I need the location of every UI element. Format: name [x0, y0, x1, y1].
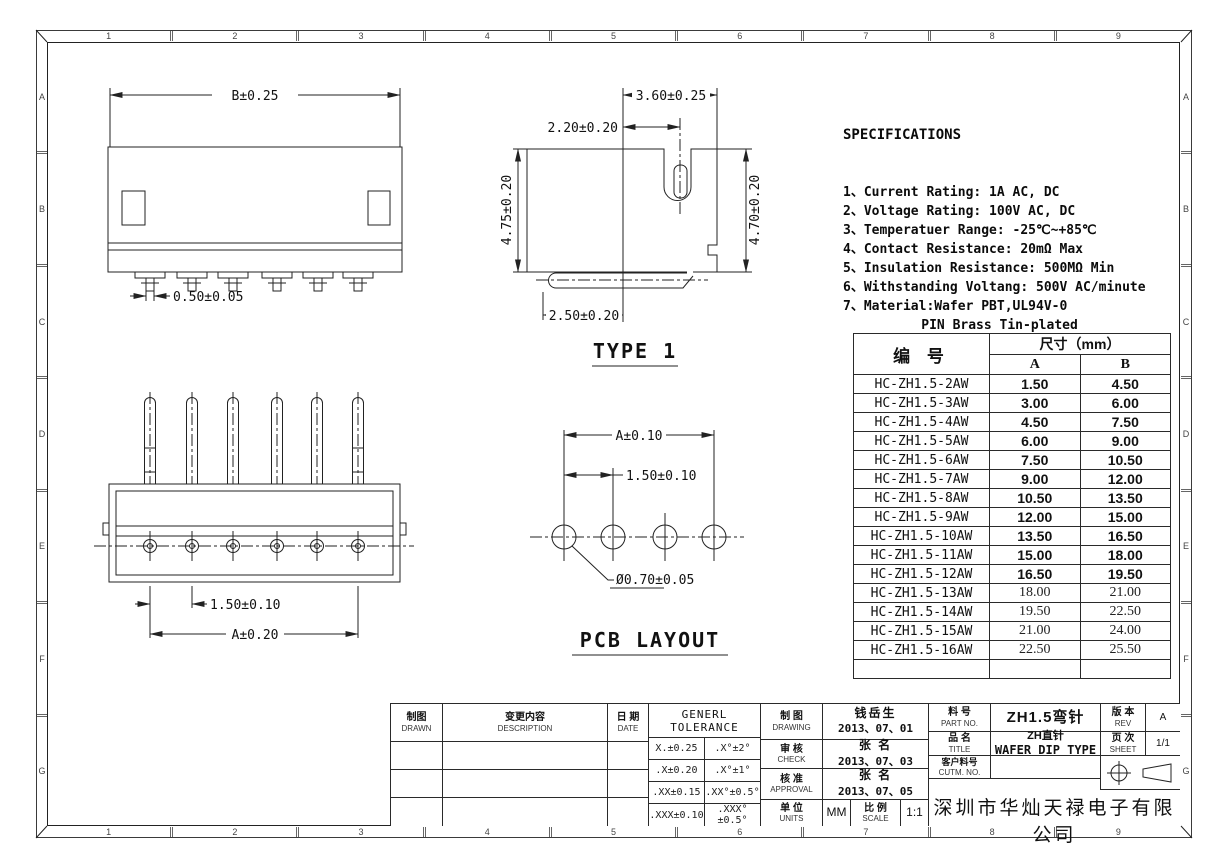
pcb-holes: [530, 513, 744, 561]
customer-no-value: [990, 755, 1100, 778]
part-number-cell: HC-ZH1.5-10AW: [854, 527, 990, 546]
part-no-en: PART NO.: [941, 719, 978, 728]
scale-value: 1:1: [900, 799, 928, 826]
dim-b-cell: 25.50: [1080, 641, 1171, 660]
third-angle-projection-icon: [1105, 759, 1177, 787]
dim-a-cell: 15.00: [990, 546, 1081, 565]
table-row: HC-ZH1.5-9AW12.0015.00: [854, 508, 1171, 527]
drawn-en: DRAWN: [402, 724, 432, 733]
check-name: 张 名: [859, 739, 892, 753]
tolerance-cell: .XX°±0.5°: [704, 781, 760, 803]
customer-no-label: 客户料号 CUTM. NO.: [928, 755, 990, 778]
dim-a-cell: 13.50: [990, 527, 1081, 546]
sheet-label: 页 次 SHEET: [1100, 731, 1145, 755]
scale-zh: 比 例: [864, 803, 887, 815]
parts-col-dim-header: 尺寸（mm）: [990, 334, 1171, 355]
part-number-cell: HC-ZH1.5-2AW: [854, 375, 990, 394]
approval-zh: 核 准: [780, 774, 803, 786]
dim-b-cell: 4.50: [1080, 375, 1171, 394]
check-zh: 审 核: [780, 744, 803, 756]
revision-cell: [442, 797, 607, 826]
table-row: HC-ZH1.5-4AW4.507.50: [854, 413, 1171, 432]
part-number-cell: HC-ZH1.5-5AW: [854, 432, 990, 451]
part-number-cell: HC-ZH1.5-16AW: [854, 641, 990, 660]
part-number-cell: HC-ZH1.5-12AW: [854, 565, 990, 584]
sheet-value: 1/1: [1145, 731, 1180, 755]
dim-b-cell: 10.50: [1080, 451, 1171, 470]
dim-a-cell: 6.00: [990, 432, 1081, 451]
front-view-pins: [145, 392, 364, 484]
check-en: CHECK: [777, 755, 805, 764]
customer-no-en: CUTM. NO.: [939, 768, 981, 777]
approval-name: 张 名: [859, 769, 892, 783]
revision-cell: [390, 797, 442, 826]
revision-cell: [390, 769, 442, 797]
part-number-cell: [854, 660, 990, 679]
parts-table: 编 号 尺寸（mm） A B HC-ZH1.5-2AW1.504.50HC-ZH…: [853, 333, 1171, 679]
dim-type1-top: 3.60±0.25: [636, 89, 706, 104]
dim-type1-bottom: 2.50±0.20: [549, 309, 619, 324]
drawing-signature: 钱岳生 2013、07、01: [822, 703, 928, 739]
revision-cell: [607, 769, 648, 797]
drawn-header: 制图 DRAWN: [390, 703, 442, 741]
approval-date: 2013、07、05: [838, 783, 913, 799]
dim-a-cell: 10.50: [990, 489, 1081, 508]
tolerance-cell: .X°±2°: [704, 737, 760, 759]
table-row: HC-ZH1.5-11AW15.0018.00: [854, 546, 1171, 565]
description-zh: 变更内容: [505, 712, 545, 724]
rev-value: A: [1145, 703, 1180, 731]
drawing-zh: 制 图: [780, 711, 803, 723]
table-row: HC-ZH1.5-10AW13.5016.50: [854, 527, 1171, 546]
part-number-cell: HC-ZH1.5-4AW: [854, 413, 990, 432]
spec-line: 2、Voltage Rating: 100V AC, DC: [843, 202, 1183, 221]
table-row: HC-ZH1.5-3AW3.006.00: [854, 394, 1171, 413]
units-label: 单 位 UNITS: [760, 799, 822, 826]
revision-cell: [607, 797, 648, 826]
dim-b-cell: 12.00: [1080, 470, 1171, 489]
dim-type1-slot: 2.20±0.20: [548, 121, 618, 136]
check-label: 审 核 CHECK: [760, 739, 822, 768]
spec-line: 1、Current Rating: 1A AC, DC: [843, 183, 1183, 202]
date-zh: 日 期: [617, 712, 640, 724]
spec-line: 5、Insulation Resistance: 500MΩ Min: [843, 259, 1183, 278]
dim-b-cell: 6.00: [1080, 394, 1171, 413]
pcb-layout-view: A±0.10 1.50±0.10 Ø0.70±0.05 PCB LAYOUT: [530, 427, 744, 655]
table-row: HC-ZH1.5-2AW1.504.50: [854, 375, 1171, 394]
table-row: HC-ZH1.5-5AW6.009.00: [854, 432, 1171, 451]
title-zh: 品 名: [948, 733, 971, 745]
revision-cell: [442, 741, 607, 769]
part-number-cell: HC-ZH1.5-15AW: [854, 622, 990, 641]
rev-zh: 版 本: [1112, 707, 1135, 719]
units-value: MM: [822, 799, 850, 826]
title-value: ZH直针 WAFER DIP TYPE: [990, 731, 1100, 755]
drawing-en: DRAWING: [772, 723, 810, 732]
type1-view: 3.60±0.25 2.20±0.20 4.75±0.20 4.70±0.20 …: [500, 87, 763, 366]
approval-label: 核 准 APPROVAL: [760, 768, 822, 799]
dim-a-cell: [990, 660, 1081, 679]
part-number-cell: HC-ZH1.5-14AW: [854, 603, 990, 622]
dim-b-cell: 22.50: [1080, 603, 1171, 622]
tolerance-cell: .X±0.20: [648, 759, 704, 781]
specifications-title: SPECIFICATIONS: [843, 126, 1183, 145]
approval-en: APPROVAL: [770, 785, 813, 794]
check-date: 2013、07、03: [838, 753, 913, 769]
specifications-block: SPECIFICATIONS 1、Current Rating: 1A AC, …: [843, 88, 1183, 373]
date-header: 日 期 DATE: [607, 703, 648, 741]
dim-a-cell: 12.00: [990, 508, 1081, 527]
title-en: TITLE: [949, 745, 971, 754]
part-number-cell: HC-ZH1.5-8AW: [854, 489, 990, 508]
dim-pcb-hole: Ø0.70±0.05: [616, 573, 694, 588]
units-en: UNITS: [780, 814, 804, 823]
drawing-label: 制 图 DRAWING: [760, 703, 822, 739]
dim-a-cell: 19.50: [990, 603, 1081, 622]
tolerance-header: GENERL TOLERANCE: [648, 703, 760, 737]
dim-a-cell: 3.00: [990, 394, 1081, 413]
drawn-zh: 制图: [407, 712, 427, 724]
dim-a-cell: 21.00: [990, 622, 1081, 641]
projection-symbol-cell: [1100, 755, 1180, 790]
front-view: 1.50±0.10 A±0.20: [94, 392, 414, 643]
dim-pcb-width: A±0.10: [616, 429, 663, 444]
dim-front-pitch: 1.50±0.10: [210, 598, 280, 613]
sheet-en: SHEET: [1110, 745, 1137, 754]
parts-col-b-header: B: [1080, 355, 1171, 375]
part-number-cell: HC-ZH1.5-13AW: [854, 584, 990, 603]
tolerance-cell: .X°±1°: [704, 759, 760, 781]
table-row: HC-ZH1.5-13AW18.0021.00: [854, 584, 1171, 603]
approval-signature: 张 名 2013、07、05: [822, 768, 928, 799]
tolerance-cell: .XXX±0.10: [648, 803, 704, 826]
dim-a-cell: 1.50: [990, 375, 1081, 394]
table-row: HC-ZH1.5-14AW19.5022.50: [854, 603, 1171, 622]
parts-col-part-header: 编 号: [854, 334, 990, 375]
dim-front-width: A±0.20: [232, 628, 279, 643]
spec-line: 7、Material:Wafer PBT,UL94V-0: [843, 297, 1183, 316]
drawing-name: 钱岳生: [854, 707, 896, 721]
spec-line: 6、Withstanding Voltang: 500V AC/minute: [843, 278, 1183, 297]
table-row: HC-ZH1.5-16AW22.5025.50: [854, 641, 1171, 660]
description-header: 变更内容 DESCRIPTION: [442, 703, 607, 741]
tolerance-cell: .XXX°±0.5°: [704, 803, 760, 826]
units-zh: 单 位: [780, 803, 803, 815]
tolerance-cell: X.±0.25: [648, 737, 704, 759]
dim-type1-right: 4.70±0.20: [748, 175, 763, 245]
part-number-cell: HC-ZH1.5-6AW: [854, 451, 990, 470]
side-view: B±0.25 0.50±0.05: [108, 87, 402, 305]
revision-cell: [442, 769, 607, 797]
dim-side-pin: 0.50±0.05: [173, 290, 243, 305]
part-no-label: 料 号 PART NO.: [928, 703, 990, 731]
revision-cell: [390, 741, 442, 769]
tolerance-cell: .XX±0.15: [648, 781, 704, 803]
dim-a-cell: 7.50: [990, 451, 1081, 470]
dim-a-cell: 22.50: [990, 641, 1081, 660]
title-value-zh: ZH直针: [1027, 730, 1064, 743]
dim-a-cell: 9.00: [990, 470, 1081, 489]
dim-b-cell: 9.00: [1080, 432, 1171, 451]
dim-b-cell: 19.50: [1080, 565, 1171, 584]
dim-b-cell: 13.50: [1080, 489, 1171, 508]
dim-b-cell: 21.00: [1080, 584, 1171, 603]
part-number-cell: HC-ZH1.5-9AW: [854, 508, 990, 527]
pcb-layout-label: PCB LAYOUT: [580, 628, 720, 652]
dim-b-cell: [1080, 660, 1171, 679]
table-row: HC-ZH1.5-12AW16.5019.50: [854, 565, 1171, 584]
table-row: HC-ZH1.5-6AW7.5010.50: [854, 451, 1171, 470]
table-row: HC-ZH1.5-8AW10.5013.50: [854, 489, 1171, 508]
date-en: DATE: [618, 724, 639, 733]
table-row: HC-ZH1.5-7AW9.0012.00: [854, 470, 1171, 489]
part-number-cell: HC-ZH1.5-7AW: [854, 470, 990, 489]
dim-side-width: B±0.25: [232, 89, 279, 104]
rev-label: 版 本 REV: [1100, 703, 1145, 731]
part-number-cell: HC-ZH1.5-11AW: [854, 546, 990, 565]
type1-label: TYPE 1: [593, 339, 677, 363]
check-signature: 张 名 2013、07、03: [822, 739, 928, 768]
title-block: 制图 DRAWN 变更内容 DESCRIPTION 日 期 DATE GENER…: [390, 703, 1180, 826]
part-no-value: ZH1.5弯针: [990, 703, 1100, 731]
dim-b-cell: 16.50: [1080, 527, 1171, 546]
description-en: DESCRIPTION: [498, 724, 553, 733]
dim-b-cell: 24.00: [1080, 622, 1171, 641]
table-row: HC-ZH1.5-15AW21.0024.00: [854, 622, 1171, 641]
spec-line: 3、Temperatuer Range: -25℃~+85℃: [843, 221, 1183, 240]
table-row: [854, 660, 1171, 679]
title-label: 品 名 TITLE: [928, 731, 990, 755]
rev-en: REV: [1115, 719, 1131, 728]
spec-line: 4、Contact Resistance: 20mΩ Max: [843, 240, 1183, 259]
dim-a-cell: 16.50: [990, 565, 1081, 584]
dim-b-cell: 18.00: [1080, 546, 1171, 565]
sheet-zh: 页 次: [1112, 733, 1135, 745]
part-number-cell: HC-ZH1.5-3AW: [854, 394, 990, 413]
dim-type1-left: 4.75±0.20: [500, 175, 515, 245]
scale-label: 比 例 SCALE: [850, 799, 900, 826]
scale-en: SCALE: [862, 814, 888, 823]
dim-a-cell: 18.00: [990, 584, 1081, 603]
part-no-zh: 料 号: [948, 707, 971, 719]
drawing-date: 2013、07、01: [838, 720, 913, 736]
parts-col-a-header: A: [990, 355, 1081, 375]
side-view-pins: [135, 272, 373, 291]
customer-no-zh: 客户料号: [941, 757, 977, 767]
dim-b-cell: 15.00: [1080, 508, 1171, 527]
drawing-sheet: 123456789 123456789 ABCDEFG ABCDEFG B±0.…: [0, 0, 1228, 868]
revision-cell: [607, 741, 648, 769]
dim-pcb-pitch: 1.50±0.10: [626, 469, 696, 484]
dim-a-cell: 4.50: [990, 413, 1081, 432]
dim-b-cell: 7.50: [1080, 413, 1171, 432]
